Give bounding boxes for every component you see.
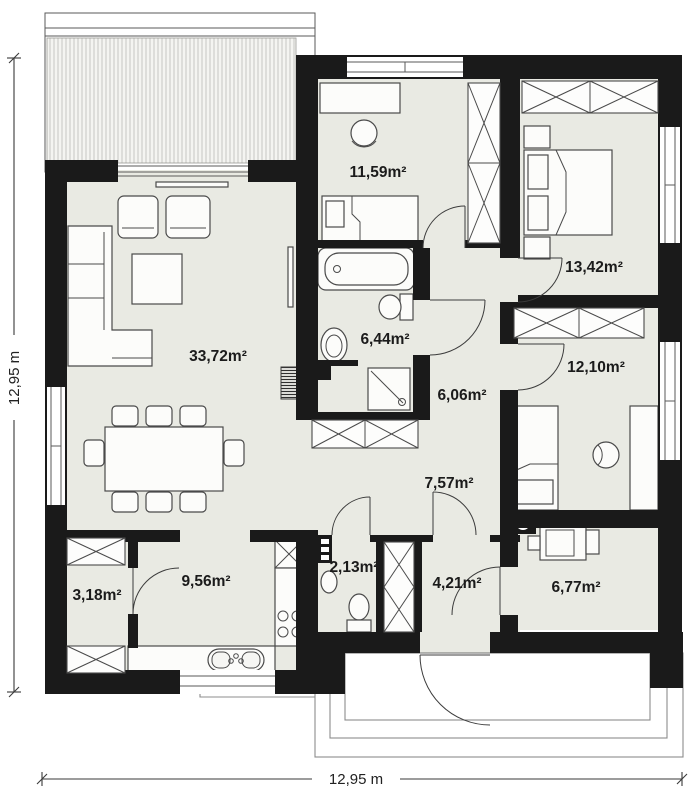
desk [320, 83, 400, 113]
pantry-shelf-bottom [67, 646, 125, 673]
pillow [517, 480, 553, 504]
dining-chair [180, 406, 206, 426]
toilet [349, 594, 369, 620]
chimney [318, 366, 331, 380]
wardrobe-bedroom-right [522, 81, 658, 113]
dining-chair [146, 492, 172, 512]
armchair [166, 196, 210, 238]
label-bathroom: 6,44m² [360, 331, 409, 348]
washer-side-unit [586, 530, 599, 554]
terrace-door-sill [156, 182, 228, 187]
floor-plan: 33,72m² 11,59m² 13,42m² 12,10m² 6,44m² 6… [0, 0, 696, 800]
dim-height: 12,95 m [6, 351, 23, 405]
detergent-box [528, 536, 540, 550]
sink-bowl [212, 652, 230, 668]
wall-spine-upper [296, 55, 318, 420]
dining-table [105, 427, 223, 491]
label-utility: 6,77m² [551, 579, 600, 596]
label-bedroom-top: 11,59m² [350, 164, 407, 181]
bathtub-inner [325, 253, 408, 285]
armchair [118, 196, 158, 238]
chair [593, 442, 619, 468]
coffee-table [132, 254, 182, 304]
cabinet-hall [384, 542, 414, 632]
wardrobe-bedroom-low [514, 308, 644, 338]
terrace-hatch [47, 38, 296, 163]
wall-front-right [490, 632, 660, 653]
label-corridor: 7,57m² [424, 475, 473, 492]
wall-bottom-kitchen [45, 670, 180, 694]
nightstand [524, 126, 550, 148]
window-top-bedroom [347, 57, 463, 77]
pantry-shelf-top [67, 538, 125, 565]
dining-chair [146, 406, 172, 426]
sink-bowl [242, 652, 260, 668]
dim-width: 12,95 m [329, 771, 383, 788]
window-left-living [47, 387, 65, 505]
label-entry: 4,21m² [432, 575, 481, 592]
label-hallway: 6,06m² [437, 387, 486, 404]
dining-chair [180, 492, 206, 512]
wall-front-left [318, 632, 420, 653]
chair [351, 120, 377, 146]
washing-machine [540, 526, 586, 560]
desk [630, 406, 658, 510]
label-kitchen: 9,56m² [181, 573, 230, 590]
dining-chair [112, 406, 138, 426]
wardrobe-corridor [312, 420, 418, 448]
window-right-bedroom [660, 127, 680, 243]
window-kitchen [180, 670, 275, 694]
nightstand [524, 237, 550, 259]
floor-plan-svg: 33,72m² 11,59m² 13,42m² 12,10m² 6,44m² 6… [0, 0, 696, 800]
terrace [45, 13, 315, 172]
window-right-bedroom-low [660, 342, 680, 460]
wall-spine-lower [296, 530, 318, 694]
toilet-cistern [347, 620, 371, 632]
toilet [379, 295, 401, 319]
toilet-cistern [400, 294, 413, 320]
label-wc: 2,13m² [329, 559, 378, 576]
pillow [528, 155, 548, 189]
dining-chair [112, 492, 138, 512]
wardrobe-bedroom-top [468, 83, 500, 243]
dining-chair [224, 440, 244, 466]
label-bedroom-low: 12,10m² [567, 359, 625, 376]
pillow [326, 201, 344, 227]
label-living: 33,72m² [189, 348, 247, 365]
label-pantry: 3,18m² [72, 587, 121, 604]
pillow [528, 196, 548, 230]
door-front [420, 655, 490, 725]
tv-panel [288, 247, 293, 307]
wall-bedrooms-divider [500, 79, 520, 258]
label-bedroom-right: 13,42m² [565, 259, 623, 276]
dining-chair [84, 440, 104, 466]
